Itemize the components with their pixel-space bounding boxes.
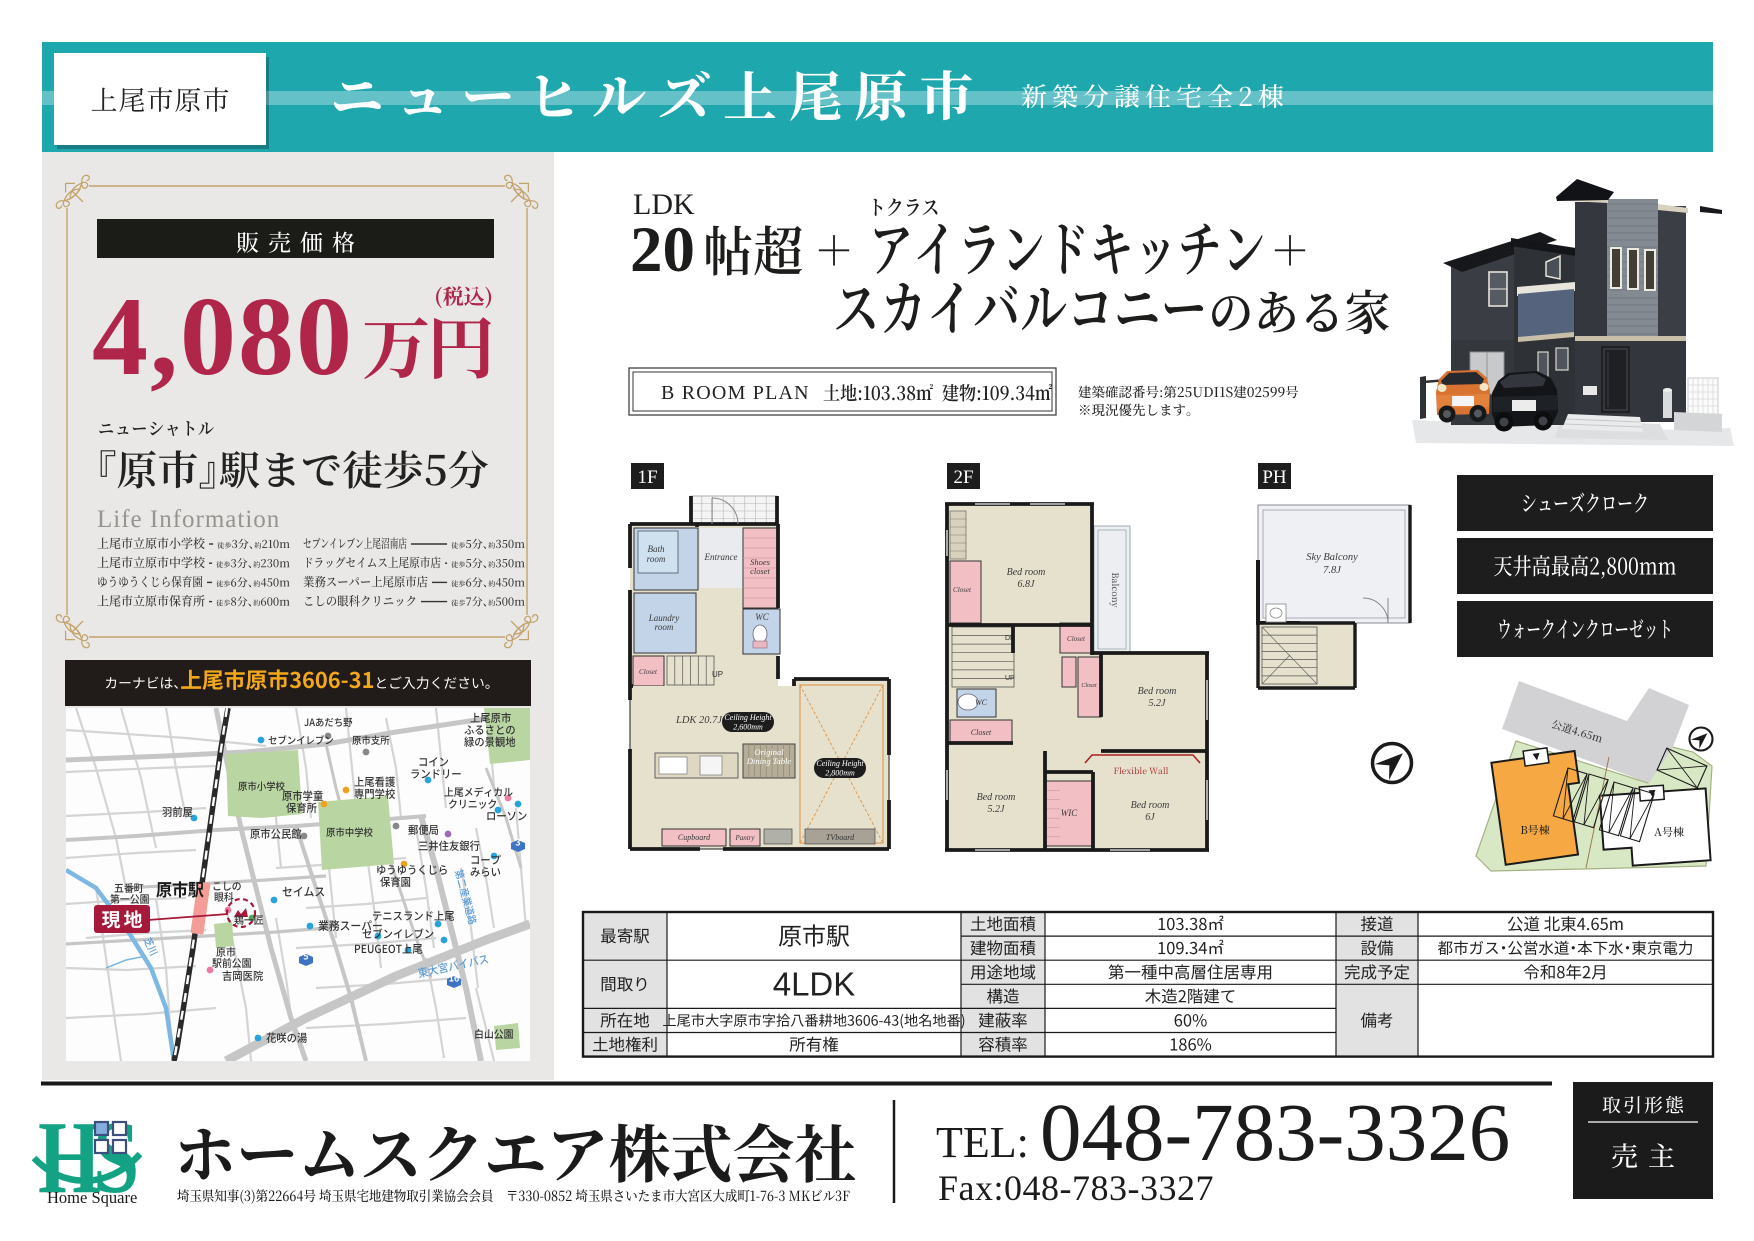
svg-text:WIC: WIC <box>1061 808 1078 818</box>
svg-text:Cupboard: Cupboard <box>678 833 711 842</box>
svg-text:6.8J: 6.8J <box>1018 579 1036 590</box>
svg-text:WC: WC <box>975 698 988 707</box>
svg-text:LDK 20.7J: LDK 20.7J <box>675 715 723 726</box>
svg-text:PH: PH <box>1262 467 1287 488</box>
svg-text:Dining Table: Dining Table <box>746 756 792 766</box>
svg-text:Home Square: Home Square <box>47 1188 137 1207</box>
svg-text:Fax:048-783-3327: Fax:048-783-3327 <box>938 1168 1214 1208</box>
svg-text:Closet: Closet <box>639 668 658 676</box>
svg-text:2F: 2F <box>953 467 973 488</box>
svg-text:Closet: Closet <box>1067 635 1086 643</box>
svg-text:Pantry: Pantry <box>734 834 755 842</box>
svg-text:Closet: Closet <box>1081 683 1097 689</box>
svg-text:Bed room: Bed room <box>1131 800 1170 811</box>
svg-text:2,600mm: 2,600mm <box>733 723 763 732</box>
svg-text:Life Information: Life Information <box>97 506 280 533</box>
svg-text:Ceiling Height: Ceiling Height <box>816 759 864 768</box>
svg-text:20: 20 <box>630 214 695 286</box>
svg-text:WC: WC <box>755 612 769 622</box>
svg-text:4,080: 4,080 <box>92 275 354 399</box>
svg-text:TVboard: TVboard <box>826 833 855 842</box>
svg-text:2,800mm: 2,800mm <box>825 769 855 778</box>
svg-text:Bed room: Bed room <box>1138 686 1177 697</box>
svg-text:Closet: Closet <box>971 728 992 737</box>
svg-text:6J: 6J <box>1145 812 1155 823</box>
svg-text:UP: UP <box>712 670 723 679</box>
svg-text:Bed room: Bed room <box>1007 567 1046 578</box>
svg-text:Ceiling Height: Ceiling Height <box>724 713 772 722</box>
svg-text:7.8J: 7.8J <box>1323 565 1342 576</box>
svg-text:Sky Balcony: Sky Balcony <box>1306 552 1358 563</box>
svg-text:1F: 1F <box>637 467 657 488</box>
svg-text:Closet: Closet <box>953 586 972 594</box>
svg-text:Bed room: Bed room <box>977 792 1016 803</box>
svg-text:5.2J: 5.2J <box>988 804 1006 815</box>
svg-text:048-783-3326: 048-783-3326 <box>1040 1086 1510 1178</box>
svg-text:UP: UP <box>1005 675 1015 682</box>
svg-text:4LDK: 4LDK <box>773 965 856 1002</box>
svg-text:B ROOM PLAN: B ROOM PLAN <box>661 382 810 404</box>
svg-text:room: room <box>655 622 674 632</box>
svg-text:Entrance: Entrance <box>704 552 738 562</box>
svg-text:closet: closet <box>750 566 770 576</box>
svg-text:Bath: Bath <box>648 544 665 554</box>
svg-text:room: room <box>647 554 666 564</box>
svg-text:TEL:: TEL: <box>936 1118 1029 1167</box>
svg-text:5.2J: 5.2J <box>1149 698 1167 709</box>
